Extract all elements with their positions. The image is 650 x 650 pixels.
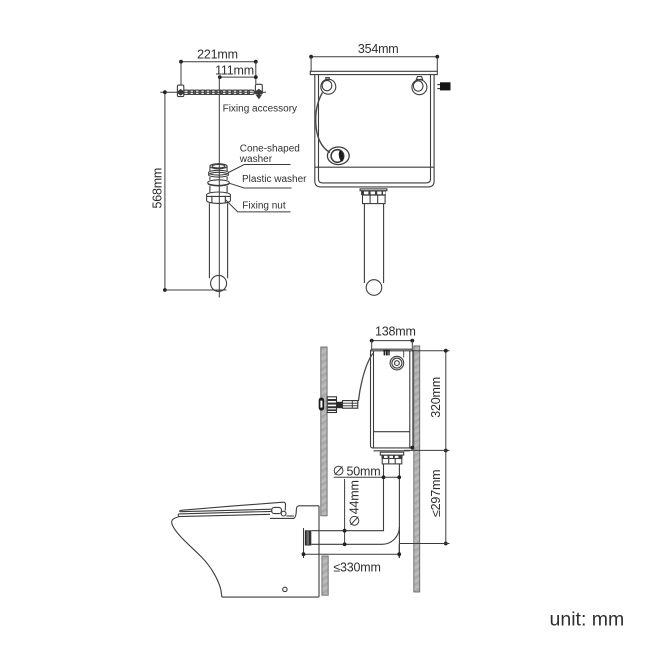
svg-text:50mm: 50mm [347,464,381,478]
svg-text:221mm: 221mm [197,47,238,61]
svg-text:Fixing accessory: Fixing accessory [223,103,297,114]
svg-text:320mm: 320mm [429,377,443,418]
svg-text:≤330mm: ≤330mm [333,560,380,574]
svg-text:unit: mm: unit: mm [550,609,625,631]
svg-text:washer: washer [239,154,273,165]
svg-text:111mm: 111mm [215,64,254,78]
svg-text:568mm: 568mm [151,168,165,209]
svg-text:Fixing nut: Fixing nut [242,201,286,212]
svg-text:44mm: 44mm [348,480,362,514]
svg-text:Cone-shaped: Cone-shaped [240,144,300,155]
svg-text:138mm: 138mm [375,324,416,338]
svg-text:Plastic washer: Plastic washer [242,174,307,185]
svg-text:≤297mm: ≤297mm [429,470,443,517]
svg-text:354mm: 354mm [358,42,399,56]
